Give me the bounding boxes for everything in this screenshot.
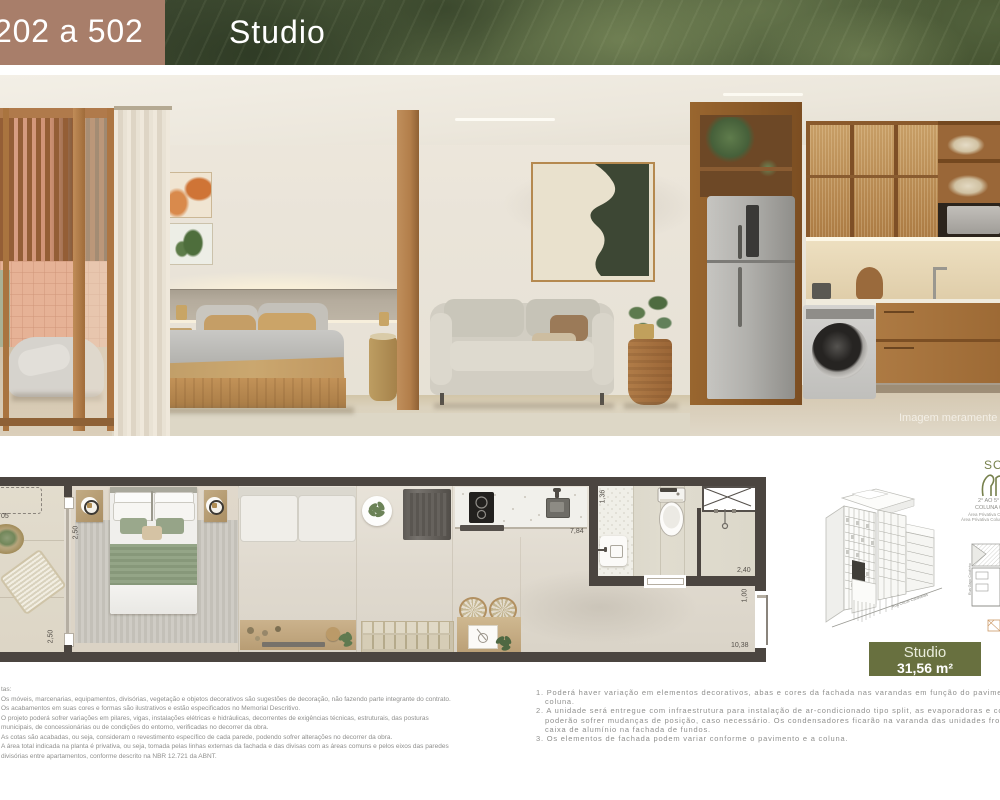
svg-text:Rua Gago Coutinho: Rua Gago Coutinho [968,563,972,595]
